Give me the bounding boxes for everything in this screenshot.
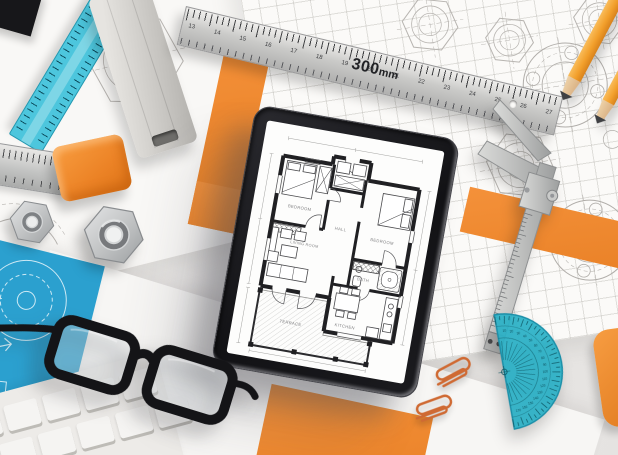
- handle-notch: [151, 129, 179, 147]
- ruler-number: 19: [341, 60, 349, 67]
- protractor-degree: 90: [543, 362, 547, 367]
- hex-nut-small: [6, 198, 60, 248]
- protractor-degree: 10: [502, 329, 506, 334]
- ruler-number: 18: [315, 54, 323, 61]
- room-label-bedroom2: BEDROOM: [370, 237, 394, 246]
- room-label-kitchen: KITCHEN: [334, 322, 355, 330]
- ruler-number: 14: [213, 29, 221, 36]
- keyboard-key: [0, 436, 38, 455]
- protractor-degree: 20: [509, 329, 513, 334]
- sketch-line: [392, 0, 469, 63]
- ruler-number: 17: [290, 48, 298, 55]
- protractor-degree: 80: [541, 356, 545, 361]
- ruler-number: 22: [417, 78, 425, 85]
- protractor-degree: 30: [516, 331, 520, 336]
- workspace-photo: 131415161718192021222324252627 300mm: [0, 0, 618, 455]
- protractor-degree: 40: [523, 334, 527, 339]
- room-label-bedroom1: BEDROOM: [288, 203, 312, 212]
- right-lens: [143, 346, 236, 423]
- hex-nut-large: [76, 200, 152, 270]
- room-label-hall: HALL: [334, 226, 347, 233]
- tablet-screen: BEDROOM BEDROOM HALL LIVING ROOM BATH KI…: [226, 120, 444, 384]
- keyboard-key: [0, 408, 4, 442]
- protractor-degree: 60: [534, 343, 538, 348]
- floor-plan: BEDROOM BEDROOM HALL LIVING ROOM BATH KI…: [226, 120, 444, 384]
- protractor-degree: 50: [529, 338, 533, 343]
- sketch-line: [602, 129, 618, 150]
- protractor-degree: 70: [538, 349, 542, 354]
- protractor: 1020304050607080901001101201301401501601…: [457, 289, 618, 445]
- ruler-number: 15: [239, 35, 247, 42]
- ruler-number: 16: [264, 42, 272, 49]
- ruler-number: 13: [188, 23, 196, 30]
